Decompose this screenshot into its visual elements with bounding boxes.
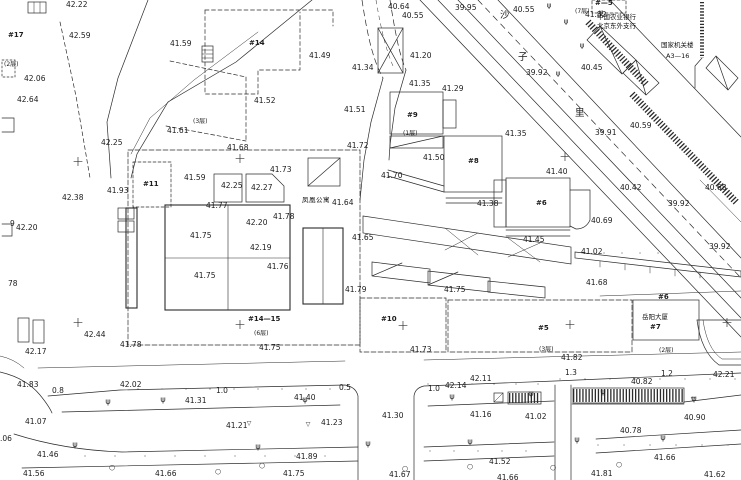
spot-elevation-label: 39.91 xyxy=(595,129,616,137)
spot-elevation-label: 41.07 xyxy=(25,418,46,426)
spot-elevation-label: 40.69 xyxy=(591,217,612,225)
street-name-char: 里 xyxy=(575,109,585,119)
round-tree-icon: ○ xyxy=(402,466,408,473)
curb-dot: · xyxy=(501,448,504,456)
curb-dot: · xyxy=(427,381,430,389)
curb-dot: · xyxy=(634,376,637,384)
building-number-label: #14—15 xyxy=(248,316,280,323)
spot-elevation-label: 41.56 xyxy=(23,470,44,478)
curb-dot: · xyxy=(623,442,626,450)
curb-dot: · xyxy=(185,386,188,394)
spot-elevation-label: 42.20 xyxy=(16,224,37,232)
lamp-post-icon: ψ xyxy=(600,388,605,396)
spot-elevation-label: 41.66 xyxy=(654,454,675,462)
round-tree-icon: ○ xyxy=(215,469,221,476)
spot-elevation-label: 41.50 xyxy=(423,154,444,162)
floor-count-label: (1层) xyxy=(403,131,418,137)
spot-elevation-label: 41.73 xyxy=(270,166,291,174)
spot-elevation-label: 41.76 xyxy=(267,263,288,271)
building-number-label: #17 xyxy=(8,32,24,39)
spot-elevation-label: 41.75 xyxy=(194,272,215,280)
lamp-post-icon: ψ xyxy=(72,441,77,449)
round-tree-icon: ○ xyxy=(616,462,622,469)
building-number-label: #8 xyxy=(468,158,479,165)
curb-dot: · xyxy=(281,386,284,394)
misc-label: 9 xyxy=(10,220,15,228)
street-name-char: 沙 xyxy=(500,11,510,21)
spot-elevation-label: 40.42 xyxy=(620,184,641,192)
spot-elevation-label: 40.78 xyxy=(620,427,641,435)
spot-elevation-label: 41.79 xyxy=(345,286,366,294)
tree-icon: ψ xyxy=(580,43,585,50)
survey-cross-icon: + xyxy=(72,316,84,330)
spot-elevation-label: 41.72 xyxy=(347,142,368,150)
curb-dot: · xyxy=(684,376,687,384)
curb-dot: · xyxy=(84,453,87,461)
building-number-label: #6 xyxy=(658,294,669,301)
curb-dot: · xyxy=(234,453,237,461)
spot-elevation-label: 41.75 xyxy=(190,232,211,240)
benchmark-icon: ▽ xyxy=(247,421,252,427)
lamp-post-icon: ψ xyxy=(449,393,454,401)
spot-elevation-label: 41.45 xyxy=(523,236,544,244)
curb-dot: · xyxy=(429,448,432,456)
curb-dot: · xyxy=(584,376,587,384)
tree-icon: ψ xyxy=(547,3,552,10)
spot-elevation-label: 41.52 xyxy=(489,458,510,466)
curb-dot: · xyxy=(559,376,562,384)
curb-dot: · xyxy=(329,386,332,394)
spot-elevation-label: 41.31 xyxy=(185,397,206,405)
survey-cross-icon: + xyxy=(559,150,571,164)
spot-elevation-label: 41.78 xyxy=(120,341,141,349)
curb-dot: · xyxy=(701,442,704,450)
road-width-label: 1.0 xyxy=(216,387,228,395)
spot-elevation-label: 42.38 xyxy=(62,194,83,202)
survey-cross-icon: + xyxy=(564,318,576,332)
misc-label: .06 xyxy=(0,435,12,443)
curb-dot: · xyxy=(709,376,712,384)
curb-dot: · xyxy=(257,386,260,394)
floor-count-label: (2层) xyxy=(659,348,674,354)
curb-dot: · xyxy=(294,453,297,461)
curb-dot: · xyxy=(264,453,267,461)
curb-dot: · xyxy=(525,448,528,456)
curb-dot: · xyxy=(659,376,662,384)
name-annotation: 凤凰公寓 xyxy=(302,197,330,204)
tree-icon: ψ xyxy=(564,19,569,26)
name-annotation: 岳阳大厦 xyxy=(642,314,668,321)
curb-dot: · xyxy=(233,386,236,394)
curb-dot: · xyxy=(449,381,452,389)
spot-elevation-label: 41.49 xyxy=(309,52,330,60)
spot-elevation-label: 41.65 xyxy=(352,234,373,242)
spot-elevation-label: 41.89 xyxy=(296,453,317,461)
spot-elevation-label: 41.59 xyxy=(170,40,191,48)
building-number-label: #6 xyxy=(536,200,547,207)
site-plan-map: 42.2242.5941.5942.0642.6441.6142.2541.68… xyxy=(0,0,741,480)
name-annotation: 北京东外支行 xyxy=(597,23,636,30)
building-number-label: #11 xyxy=(143,181,159,188)
spot-elevation-label: 39.92 xyxy=(526,69,547,77)
spot-elevation-label: 41.59 xyxy=(184,174,205,182)
spot-elevation-label: 40.59 xyxy=(630,122,651,130)
curb-dot: · xyxy=(209,386,212,394)
spot-elevation-label: 41.75 xyxy=(444,286,465,294)
curb-dot: · xyxy=(515,381,518,389)
spot-elevation-label: 40.64 xyxy=(388,3,409,11)
curb-dot: · xyxy=(649,442,652,450)
spot-elevation-label: 41.23 xyxy=(321,419,342,427)
spot-elevation-label: 41.64 xyxy=(332,199,353,207)
spot-elevation-label: 39.95 xyxy=(455,4,476,12)
spot-elevation-label: 41.83 xyxy=(17,381,38,389)
curb-dot: · xyxy=(114,453,117,461)
floor-count-label: (6层) xyxy=(254,331,269,337)
road-width-label: 0.5 xyxy=(339,384,351,392)
curb-dot: · xyxy=(161,386,164,394)
name-annotation: 国家机关楼 xyxy=(661,42,694,49)
spot-elevation-label: 42.21 xyxy=(713,371,734,379)
floor-count-label: (3层) xyxy=(193,119,208,125)
spot-elevation-label: 41.30 xyxy=(382,412,403,420)
spot-elevation-label: 41.66 xyxy=(497,474,518,480)
curb-dot: · xyxy=(477,448,480,456)
curb-dot: · xyxy=(603,250,606,258)
spot-elevation-label: 41.62 xyxy=(704,471,725,479)
spot-elevation-label: 41.75 xyxy=(283,470,304,478)
spot-elevation-label: 39.92 xyxy=(709,243,730,251)
curb-dot: · xyxy=(597,442,600,450)
spot-elevation-label: 42.25 xyxy=(221,182,242,190)
lamp-post-icon: ψ xyxy=(105,398,110,406)
spot-elevation-label: 42.19 xyxy=(250,244,271,252)
spot-elevation-label: 41.38 xyxy=(477,200,498,208)
spot-elevation-label: 40.55 xyxy=(513,6,534,14)
spot-elevation-label: 41.35 xyxy=(409,80,430,88)
curb-dot: · xyxy=(305,386,308,394)
curb-dot: · xyxy=(609,376,612,384)
curb-dot: · xyxy=(727,442,730,450)
spot-elevation-label: 41.40 xyxy=(546,168,567,176)
spot-elevation-label: 41.02 xyxy=(581,248,602,256)
road-width-label: 1.2 xyxy=(661,370,673,378)
curb-dot: · xyxy=(657,250,660,258)
lamp-post-icon: ψ xyxy=(691,395,696,403)
curb-dot: · xyxy=(324,453,327,461)
spot-elevation-label: 40.90 xyxy=(684,414,705,422)
curb-dot: · xyxy=(675,442,678,450)
spot-elevation-label: 41.78 xyxy=(273,213,294,221)
road-width-label: 0.8 xyxy=(52,387,64,395)
street-name-char: 子 xyxy=(518,53,528,63)
lamp-post-icon: ψ xyxy=(365,440,370,448)
spot-elevation-label: 41.52 xyxy=(254,97,275,105)
spot-elevation-label: 42.17 xyxy=(25,348,46,356)
tree-icon: ψ xyxy=(556,71,561,78)
spot-elevation-label: 40.55 xyxy=(402,12,423,20)
survey-cross-icon: + xyxy=(234,152,246,166)
spot-elevation-label: 42.06 xyxy=(24,75,45,83)
spot-elevation-label: 42.64 xyxy=(17,96,38,104)
round-tree-icon: ○ xyxy=(109,465,115,472)
curb-dot: · xyxy=(621,250,624,258)
spot-elevation-label: 41.70 xyxy=(381,172,402,180)
spot-elevation-label: 39.92 xyxy=(668,200,689,208)
curb-dot: · xyxy=(537,381,540,389)
lamp-post-icon: ψ xyxy=(255,443,260,451)
spot-elevation-label: 41.75 xyxy=(259,344,280,352)
road-width-label: 1.0 xyxy=(428,385,440,393)
floor-count-label: (3层) xyxy=(539,347,554,353)
survey-cross-icon: + xyxy=(397,319,409,333)
misc-label: 78 xyxy=(8,280,18,288)
spot-elevation-label: 41.66 xyxy=(155,470,176,478)
spot-elevation-label: 41.35 xyxy=(505,130,526,138)
curb-dot: · xyxy=(734,376,737,384)
survey-cross-icon: + xyxy=(72,155,84,169)
curb-dot: · xyxy=(453,448,456,456)
spot-elevation-label: 41.20 xyxy=(410,52,431,60)
building-number-label: #7 xyxy=(650,324,661,331)
map-label-layer: 42.2242.5941.5942.0642.6441.6142.2541.68… xyxy=(0,0,741,480)
spot-elevation-label: 42.25 xyxy=(101,139,122,147)
floor-count-label: (2层) xyxy=(4,62,19,68)
spot-elevation-label: 41.29 xyxy=(442,85,463,93)
spot-elevation-label: 41.21 xyxy=(226,422,247,430)
benchmark-icon: ▽ xyxy=(306,422,311,428)
spot-elevation-label: 41.93 xyxy=(107,187,128,195)
curb-dot: · xyxy=(493,381,496,389)
spot-elevation-label: 42.59 xyxy=(69,32,90,40)
spot-elevation-label: 41.81 xyxy=(591,470,612,478)
spot-elevation-label: 42.22 xyxy=(66,1,87,9)
curb-dot: · xyxy=(137,386,140,394)
lamp-post-icon: ψ xyxy=(302,396,307,404)
spot-elevation-label: 41.16 xyxy=(470,411,491,419)
spot-elevation-label: 41.02 xyxy=(525,413,546,421)
spot-elevation-label: 41.68 xyxy=(586,279,607,287)
spot-elevation-label: 41.46 xyxy=(37,451,58,459)
spot-elevation-label: 42.27 xyxy=(251,184,272,192)
survey-cross-icon: + xyxy=(234,318,246,332)
spot-elevation-label: 41.34 xyxy=(352,64,373,72)
road-width-label: 1.3 xyxy=(565,369,577,377)
round-tree-icon: ○ xyxy=(550,465,556,472)
building-number-label: #5 xyxy=(538,325,549,332)
lamp-post-icon: ψ xyxy=(574,436,579,444)
spot-elevation-label: 41.51 xyxy=(344,106,365,114)
curb-dot: · xyxy=(174,453,177,461)
tree-icon: ψ xyxy=(599,10,604,17)
lamp-post-icon: ψ xyxy=(160,396,165,404)
lamp-post-icon: ψ xyxy=(528,390,533,398)
round-tree-icon: ○ xyxy=(467,464,473,471)
building-number-label: #10 xyxy=(381,316,397,323)
spot-elevation-label: 40.68 xyxy=(705,184,726,192)
building-number-label: #—5 xyxy=(595,0,613,7)
round-tree-icon: ○ xyxy=(259,463,265,470)
lamp-post-icon: ψ xyxy=(660,434,665,442)
spot-elevation-label: 41.77 xyxy=(206,202,227,210)
survey-cross-icon: + xyxy=(721,316,733,330)
building-number-label: #9 xyxy=(407,112,418,119)
spot-elevation-label: 40.45 xyxy=(581,64,602,72)
building-number-label: #14 xyxy=(249,40,265,47)
spot-elevation-label: 42.44 xyxy=(84,331,105,339)
name-annotation: A3—16 xyxy=(666,53,689,60)
curb-dot: · xyxy=(471,381,474,389)
spot-elevation-label: 42.20 xyxy=(246,219,267,227)
floor-count-label: (7层) xyxy=(575,9,590,15)
spot-elevation-label: 41.73 xyxy=(410,346,431,354)
spot-elevation-label: 41.82 xyxy=(561,354,582,362)
curb-dot: · xyxy=(204,453,207,461)
lamp-post-icon: ψ xyxy=(467,438,472,446)
curb-dot: · xyxy=(639,250,642,258)
curb-dot: · xyxy=(144,453,147,461)
spot-elevation-label: 41.61 xyxy=(167,127,188,135)
